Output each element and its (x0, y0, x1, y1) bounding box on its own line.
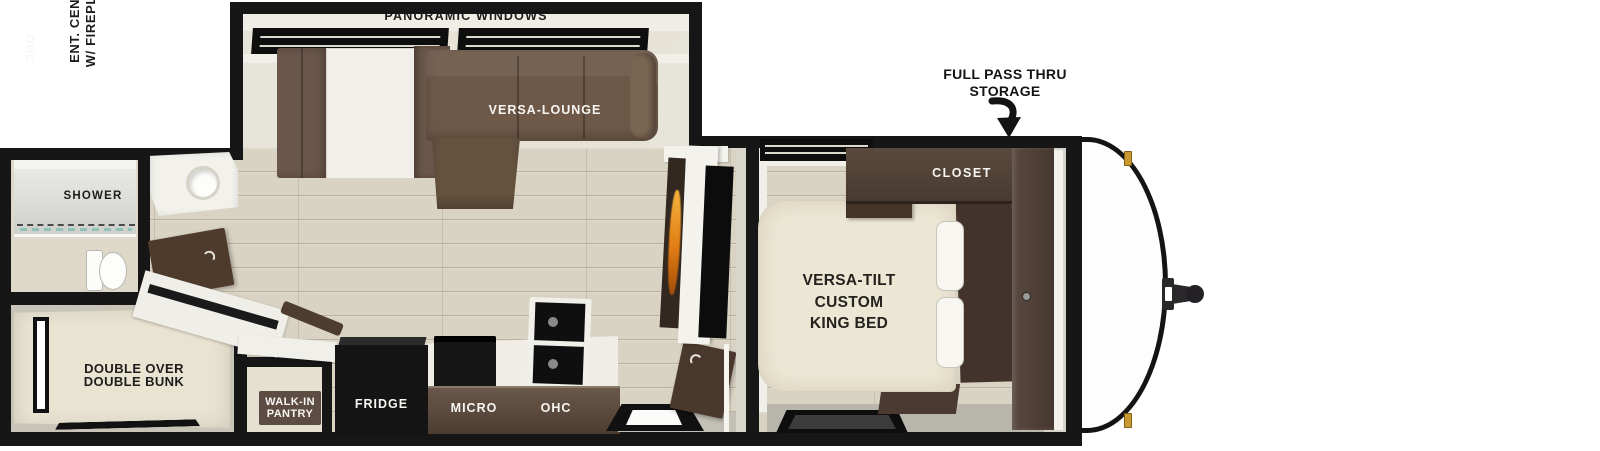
bedroom-wall-face-living (736, 150, 746, 432)
versa-lounge-sofa (426, 50, 658, 141)
shower-label: SHOWER (48, 190, 138, 202)
kitchen-ohc-label: OHC (524, 401, 588, 415)
pass-thru-wall-trim (1053, 150, 1063, 430)
front-wall (1066, 136, 1082, 446)
pass-thru-storage-label-line1: FULL PASS THRU (920, 66, 1090, 83)
sofa-armrest (630, 53, 656, 138)
versa-lounge-label: VERSA-LOUNGE (470, 103, 620, 117)
closet-label: CLOSET (897, 166, 1027, 180)
pantry-label-line1: WALK-IN (259, 396, 321, 409)
hitch-coupler-icon (1156, 272, 1212, 316)
pass-thru-storage-label: FULL PASS THRU STORAGE (920, 66, 1090, 100)
pantry-label-line2: PANTRY (259, 408, 321, 421)
king-bed-label-line3: KING BED (758, 313, 940, 335)
storage-arrow-icon (984, 96, 1030, 142)
king-bed-label: VERSA-TILT CUSTOM KING BED (758, 270, 940, 335)
ent-center-label-line1: ENT. CENTER (67, 0, 83, 101)
bathroom-bottom-wall (0, 292, 150, 305)
bedroom-ohc-cabinet (1012, 148, 1054, 430)
toilet-bowl (99, 252, 127, 290)
pillow (936, 221, 964, 291)
window-slat (466, 36, 641, 38)
sofa-chaise (432, 138, 520, 209)
king-bed-label-line1: VERSA-TILT (758, 270, 940, 292)
clearance-light-bottom (1124, 413, 1132, 428)
slideout-right-wall (689, 2, 702, 142)
ent-center-label: ENT. CENTER W/ FIREPLACE (67, 0, 101, 101)
bedroom-ohc-label: OHC (15, 19, 45, 79)
window-slat (465, 45, 640, 47)
pantry-label-plate: WALK-IN PANTRY (259, 391, 321, 425)
sofa-seam (583, 56, 585, 138)
window-slat (259, 45, 439, 47)
bathroom-sink (186, 166, 220, 200)
window-slat (260, 36, 440, 38)
cabinet-knob (1022, 292, 1031, 301)
sink-drain (548, 359, 558, 369)
bottom-wall (0, 432, 1082, 446)
fridge (335, 345, 428, 435)
shower-glass-tint (20, 228, 132, 231)
micro-label: MICRO (432, 401, 516, 415)
slideout-top-wall (230, 2, 702, 14)
sink-drain (548, 317, 558, 327)
shower-ledge (14, 160, 136, 169)
pillow (936, 297, 964, 368)
entry-step-mat-inner (626, 410, 682, 425)
sofa-seam (517, 56, 519, 138)
sofa-bed-mattress (326, 48, 420, 179)
pantry-right-wall (322, 360, 332, 432)
king-bed-label-line2: CUSTOM (758, 292, 940, 314)
ent-center-label-line2: W/ FIREPLACE (83, 0, 99, 101)
entry-door-frame (724, 344, 729, 432)
slideout-left-wall (230, 2, 243, 148)
fridge-label: FRIDGE (335, 397, 428, 411)
bed-tilt-panel (955, 189, 1016, 382)
clearance-light-top (1124, 151, 1132, 166)
window-slat (765, 145, 869, 147)
bedroom-window-bottom-glass (788, 415, 896, 429)
floorplan-canvas: PANORAMIC WINDOWS VERSA-LOUNGE SHOWER DO… (0, 0, 1600, 451)
bunk-label-line2: DOUBLE BUNK (44, 374, 224, 389)
microwave (434, 336, 496, 388)
sofa-bed-arm (277, 48, 329, 178)
